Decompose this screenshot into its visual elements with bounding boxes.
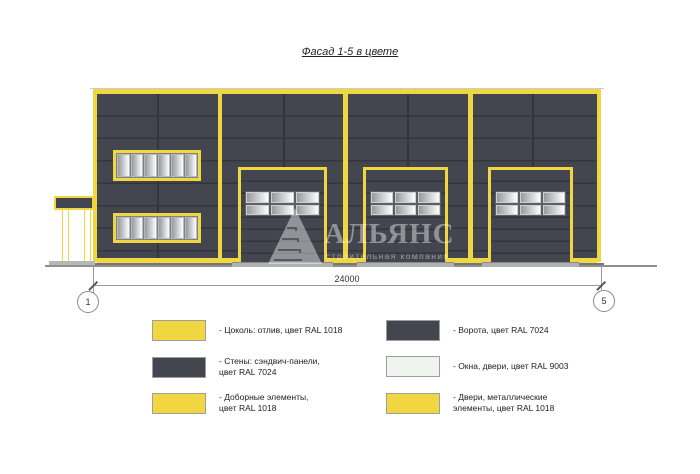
- gate-pane: [271, 192, 294, 203]
- gate-pane: [246, 205, 269, 216]
- legend-label: - Цоколь: отлив, цвет RAL 1018: [219, 325, 342, 336]
- legend-label: - Двери, металлические элементы, цвет RA…: [453, 392, 554, 414]
- gate-pane: [271, 205, 294, 216]
- legend-swatch: [386, 320, 440, 341]
- window-pane: [185, 154, 198, 177]
- gate-glazing: [495, 191, 566, 216]
- legend-item: - Окна, двери, цвет RAL 9003: [386, 356, 568, 377]
- axis-marker-5: 5: [593, 290, 615, 312]
- legend-swatch: [386, 393, 440, 414]
- sectional-gate-1: [238, 167, 327, 262]
- gate-pane: [496, 205, 518, 216]
- dimension-line: [93, 285, 601, 286]
- sectional-gate-2: [363, 167, 448, 262]
- bay-divider: [468, 89, 473, 262]
- gate-pane: [520, 205, 542, 216]
- gate-pane: [418, 205, 440, 216]
- panel-seam-vertical: [407, 94, 409, 167]
- legend-swatch: [152, 320, 206, 341]
- legend-item: - Ворота, цвет RAL 7024: [386, 320, 549, 341]
- gate-threshold: [482, 262, 579, 267]
- gate-pane: [496, 192, 518, 203]
- legend-swatch: [386, 356, 440, 377]
- window-pane: [158, 217, 171, 239]
- gate-pane: [296, 192, 319, 203]
- gate-glazing: [245, 191, 320, 216]
- gate-threshold: [357, 262, 454, 267]
- axis-marker-1: 1: [77, 291, 99, 313]
- gate-pane: [418, 192, 440, 203]
- canopy-post: [84, 210, 91, 262]
- window-pane: [171, 154, 184, 177]
- legend-label: - Стены: сэндвич-панели, цвет RAL 7024: [219, 356, 320, 378]
- bay-divider: [343, 89, 348, 262]
- canopy-threshold: [49, 261, 95, 265]
- window-pane: [185, 217, 198, 239]
- legend-swatch: [152, 357, 206, 378]
- legend-label: - Доборные элементы, цвет RAL 1018: [219, 392, 308, 414]
- gate-threshold: [232, 262, 333, 267]
- window-pane: [144, 154, 157, 177]
- window-pane: [117, 154, 130, 177]
- dimension-label: 24000: [93, 274, 601, 284]
- ribbon-window-lower: [113, 213, 201, 243]
- legend-item: - Доборные элементы, цвет RAL 1018: [152, 392, 308, 414]
- legend-item: - Стены: сэндвич-панели, цвет RAL 7024: [152, 356, 320, 378]
- gate-pane: [371, 205, 393, 216]
- window-pane: [171, 217, 184, 239]
- gate-pane: [395, 192, 417, 203]
- drawing-sheet: Фасад 1-5 в цвете: [0, 0, 700, 474]
- window-pane: [131, 154, 144, 177]
- sectional-gate-3: [488, 167, 573, 262]
- legend-item: - Двери, металлические элементы, цвет RA…: [386, 392, 554, 414]
- window-pane: [158, 154, 171, 177]
- bay-divider: [218, 89, 223, 262]
- window-pane: [131, 217, 144, 239]
- entrance-canopy: [54, 196, 94, 210]
- legend-item: - Цоколь: отлив, цвет RAL 1018: [152, 320, 342, 341]
- gate-pane: [371, 192, 393, 203]
- ribbon-window-upper: [113, 150, 201, 181]
- drawing-title: Фасад 1-5 в цвете: [0, 46, 700, 58]
- window-pane: [144, 217, 157, 239]
- gate-pane: [543, 205, 565, 216]
- gate-glazing: [370, 191, 441, 216]
- window-pane: [117, 217, 130, 239]
- panel-seam-vertical: [283, 94, 285, 167]
- gate-pane: [296, 205, 319, 216]
- gate-pane: [520, 192, 542, 203]
- legend-label: - Ворота, цвет RAL 7024: [453, 325, 549, 336]
- gate-pane: [395, 205, 417, 216]
- canopy-post: [62, 210, 69, 262]
- legend-label: - Окна, двери, цвет RAL 9003: [453, 361, 568, 372]
- panel-seam-vertical: [532, 94, 534, 167]
- legend-swatch: [152, 393, 206, 414]
- gate-pane: [543, 192, 565, 203]
- plinth-strip: [97, 258, 239, 263]
- gate-pane: [246, 192, 269, 203]
